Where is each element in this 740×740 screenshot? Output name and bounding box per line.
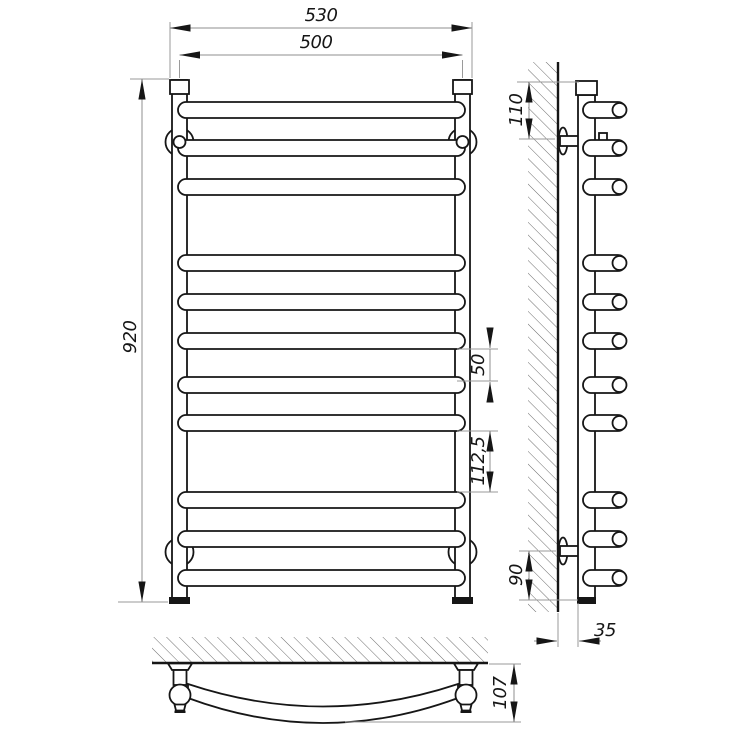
dim-top-bracket-offset: 110: [506, 94, 527, 127]
side-rung-end: [613, 295, 627, 309]
towel-rail-drawing: 530 500 920 50 112,5: [0, 0, 740, 740]
bracket-arm: [560, 546, 579, 556]
dim-group-gap: 112,5: [468, 436, 489, 485]
side-rung-end: [613, 532, 627, 546]
right-rail-foot: [452, 597, 473, 604]
rung: [178, 492, 465, 508]
side-rung-end: [613, 141, 627, 155]
rung: [178, 377, 465, 393]
rung: [178, 415, 465, 431]
rung: [178, 255, 465, 271]
bracket-ball: [170, 685, 191, 706]
side-rung-end: [613, 571, 627, 585]
dim-rung-gap: 50: [468, 354, 489, 376]
side-rail-cap: [576, 81, 597, 95]
bracket-foot-base: [175, 711, 186, 714]
wall-hatch: [528, 62, 558, 612]
bracket-foot-base: [461, 711, 472, 714]
dim-depth: 107: [490, 676, 511, 710]
bracket-flange: [168, 664, 192, 671]
bracket-foot: [461, 705, 472, 711]
front-view: [166, 80, 477, 604]
rung: [178, 179, 465, 195]
left-rail-cap: [170, 80, 189, 94]
rung: [178, 102, 465, 118]
bracket-foot: [175, 705, 186, 711]
dim-height: 920: [120, 321, 141, 354]
side-rung-end: [613, 334, 627, 348]
side-rung-end: [613, 493, 627, 507]
bracket-arm: [560, 136, 579, 146]
technical-drawing-canvas: 530 500 920 50 112,5: [0, 0, 740, 740]
curved-rung: [188, 684, 458, 723]
bracket-flange: [454, 664, 478, 671]
bracket-screw: [174, 136, 186, 148]
dim-overall-width: 530: [305, 5, 338, 26]
rung: [178, 570, 465, 586]
rung: [178, 531, 465, 547]
bracket-ball: [456, 685, 477, 706]
side-rung-end: [613, 256, 627, 270]
side-rung-end: [613, 103, 627, 117]
bottom-view: [152, 637, 488, 723]
wall-hatch: [152, 637, 488, 663]
bracket-stem: [174, 670, 187, 685]
bracket-stem: [460, 670, 473, 685]
side-view: [528, 62, 627, 612]
side-rung-end: [613, 378, 627, 392]
left-rail-foot: [169, 597, 190, 604]
bracket-screw: [457, 136, 469, 148]
side-rail-foot: [577, 597, 596, 604]
right-rail-cap: [453, 80, 472, 94]
side-rung-end: [613, 180, 627, 194]
rung: [178, 333, 465, 349]
dim-axis-width: 500: [300, 32, 333, 53]
rung: [178, 294, 465, 310]
dim-bottom-bracket-offset: 90: [506, 564, 527, 586]
dim-wall-clearance: 35: [594, 620, 616, 641]
rung: [178, 140, 465, 156]
side-rung-end: [613, 416, 627, 430]
